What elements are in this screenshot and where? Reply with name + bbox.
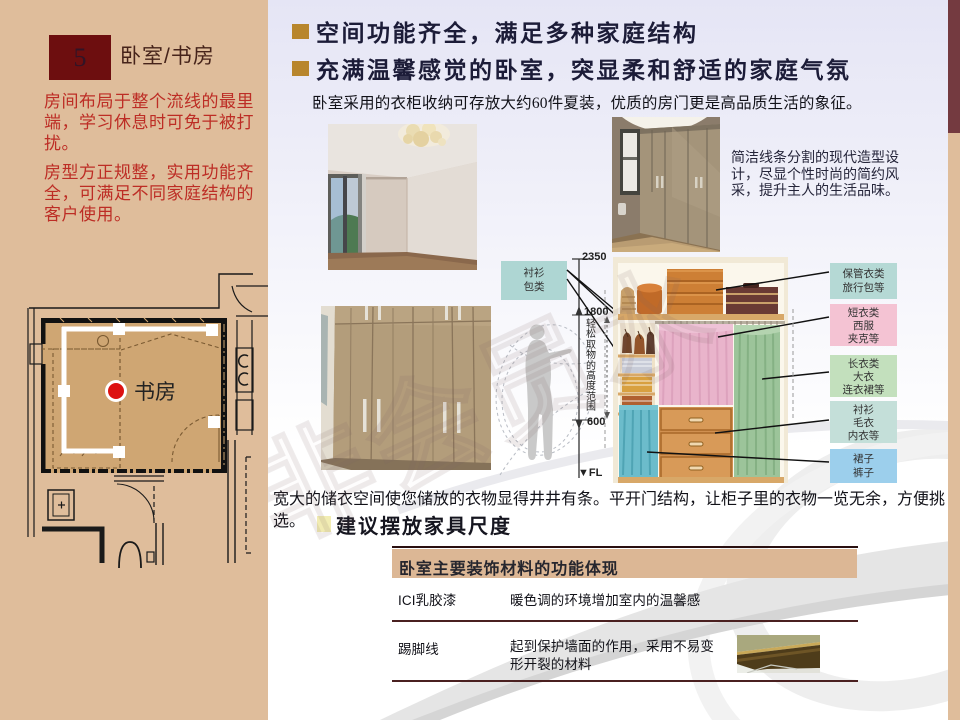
svg-text:书房: 书房 [134,381,176,404]
